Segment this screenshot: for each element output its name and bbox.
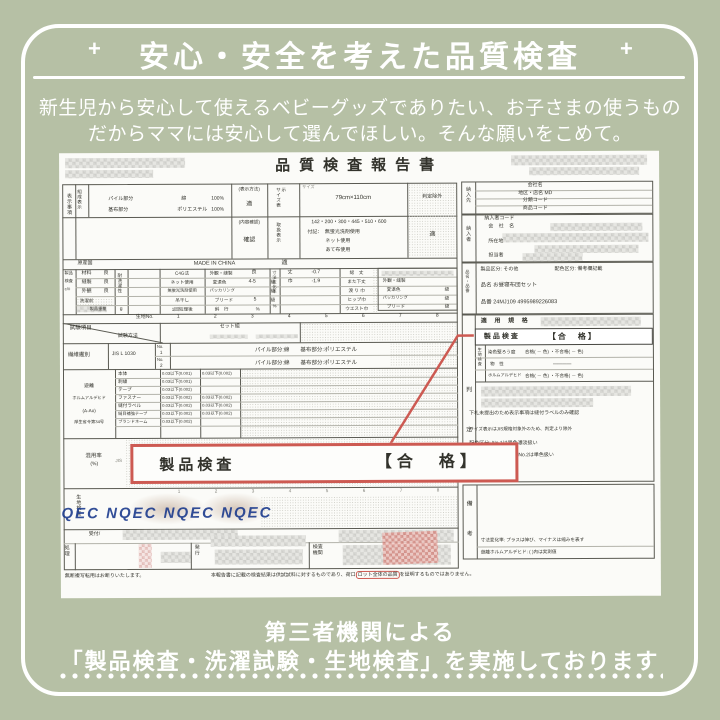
title-underline (33, 76, 685, 79)
page-title: 安心・安全を考えた品質検査 (0, 32, 720, 76)
callout-result: 【合 格】 (333, 453, 523, 472)
footer-line1: 第三者機関による (0, 615, 720, 647)
pass-callout: 製品検査 【合 格】 (130, 442, 518, 484)
red-connector-line (59, 151, 661, 599)
dotted-divider (57, 671, 663, 681)
subtitle-line1: 新生児から安心して使えるベビーグッズでありたい、お子さまの使うもの (0, 93, 720, 120)
callout-label: 製品検査 (159, 457, 235, 475)
inspection-report-document: 品質検査報告書 表示事項 組成表示 パイル部分 綿 100% 基布部分 ポリエス… (59, 151, 661, 599)
subtitle-line2: だからママには安心して選んでほしい。そんな願いをこめて。 (0, 119, 720, 146)
